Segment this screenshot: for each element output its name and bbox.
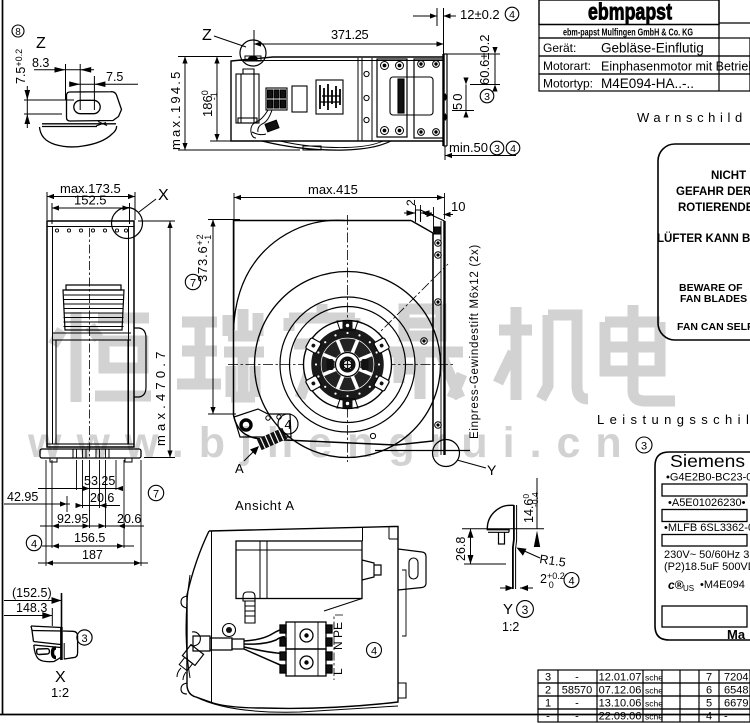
svg-text:Gerät:: Gerät: (543, 41, 576, 55)
svg-text:(152.5): (152.5) (12, 586, 52, 600)
svg-text:53.25: 53.25 (84, 474, 115, 488)
svg-text:max.194.5: max.194.5 (168, 69, 183, 150)
svg-text:Z: Z (202, 27, 212, 44)
svg-text:•M4E094: •M4E094 (700, 579, 745, 591)
svg-text:Ma: Ma (727, 627, 746, 642)
svg-text:12±0.2: 12±0.2 (460, 7, 500, 22)
svg-text:6: 6 (706, 685, 712, 697)
svg-text:N PE: N PE (331, 622, 345, 650)
svg-text:max.470.7: max.470.7 (153, 347, 168, 446)
svg-text:•A5E01026230•: •A5E01026230• (668, 497, 746, 509)
svg-text:LÜFTER KANN B: LÜFTER KANN B (657, 232, 750, 245)
svg-text:152.5: 152.5 (74, 193, 107, 208)
svg-text:sche: sche (645, 686, 663, 696)
svg-text:GEFAHR DER: GEFAHR DER (676, 186, 750, 198)
svg-text:8.3: 8.3 (32, 56, 49, 70)
svg-text:min.50: min.50 (449, 140, 488, 155)
svg-text:-: - (575, 672, 579, 684)
svg-text:X: X (158, 187, 169, 204)
svg-text:-: - (575, 711, 579, 723)
svg-text:ebmpapst: ebmpapst (588, 0, 672, 25)
svg-text:42.95: 42.95 (7, 490, 38, 504)
svg-text:www.bjhengrui.cn: www.bjhengrui.cn (27, 419, 637, 467)
svg-text:-: - (724, 711, 728, 723)
svg-text:Einpress-Gewindestift M6x12 (2: Einpress-Gewindestift M6x12 (2x) (469, 244, 481, 439)
svg-text:•G4E2B0-BC23-05: •G4E2B0-BC23-05 (666, 472, 750, 484)
svg-text:1: 1 (545, 698, 551, 710)
svg-text:•MLFB 6SL3362-0: •MLFB 6SL3362-0 (664, 522, 750, 534)
svg-text:3: 3 (484, 91, 490, 103)
svg-text:2: 2 (545, 685, 551, 697)
svg-text:371.25: 371.25 (331, 27, 369, 42)
svg-text:58570: 58570 (562, 685, 593, 697)
svg-text:sche: sche (645, 673, 663, 683)
svg-text:07.12.06: 07.12.06 (599, 685, 642, 697)
svg-text:4: 4 (285, 418, 292, 432)
svg-text:3: 3 (81, 633, 87, 645)
svg-text:US: US (683, 584, 694, 593)
svg-text:L: L (331, 668, 345, 675)
svg-text:10: 10 (451, 199, 465, 214)
svg-text:ROTIERENDE: ROTIERENDE (678, 202, 750, 214)
svg-text:Einphasenmotor mit Betriebs: Einphasenmotor mit Betriebs (601, 60, 750, 74)
svg-text:sche: sche (645, 699, 663, 709)
svg-text:3: 3 (494, 143, 500, 155)
svg-text:3: 3 (545, 672, 551, 684)
svg-text:7: 7 (153, 489, 159, 501)
svg-text:26.8: 26.8 (454, 537, 468, 561)
svg-text:Motorart:: Motorart: (543, 59, 591, 73)
svg-text:22.09.06: 22.09.06 (599, 711, 642, 723)
svg-text:187: 187 (82, 548, 103, 562)
svg-text:FAN BLADES: FAN BLADES (680, 293, 747, 305)
svg-text:1:2: 1:2 (502, 620, 519, 634)
svg-text:4: 4 (568, 576, 574, 588)
svg-text:12.01.07: 12.01.07 (599, 672, 642, 684)
svg-text:230V~ 50/60Hz 3: 230V~ 50/60Hz 3 (664, 549, 749, 561)
svg-text:7: 7 (190, 278, 196, 290)
svg-text:6548: 6548 (724, 685, 748, 697)
svg-text:M4E094-HA..-..: M4E094-HA..-.. (601, 76, 694, 91)
svg-text:ebm-papst Mulfingen GmbH & Co.: ebm-papst Mulfingen GmbH & Co. KG (563, 28, 693, 39)
svg-text:156.5: 156.5 (74, 531, 105, 545)
svg-text:X: X (55, 669, 66, 686)
svg-text:4: 4 (509, 9, 515, 21)
svg-text:20.6: 20.6 (117, 512, 141, 526)
svg-text:4: 4 (371, 646, 377, 658)
svg-text:Gebläse-Einflutig: Gebläse-Einflutig (601, 41, 704, 56)
svg-text:8: 8 (15, 27, 21, 38)
svg-text:-: - (575, 698, 579, 710)
svg-text:NICHT: NICHT (711, 170, 746, 182)
svg-text:3: 3 (522, 603, 529, 617)
svg-text:7204: 7204 (724, 672, 748, 684)
svg-text:2: 2 (404, 199, 418, 206)
svg-text:Y: Y (487, 462, 497, 478)
svg-text:4: 4 (706, 711, 712, 723)
svg-text:sche: sche (645, 712, 663, 722)
svg-text:6679: 6679 (724, 698, 748, 710)
svg-text:Ansicht A: Ansicht A (235, 498, 295, 513)
svg-text:50: 50 (450, 92, 465, 110)
svg-text:60.6±0.2: 60.6±0.2 (477, 34, 492, 85)
svg-text:Motortyp:: Motortyp: (543, 77, 593, 91)
svg-text:Siemens: Siemens (670, 451, 745, 471)
svg-text:FAN CAN SELF: FAN CAN SELF (677, 321, 750, 333)
svg-text:7: 7 (706, 672, 712, 684)
svg-text:-: - (546, 711, 550, 723)
svg-text:max.415: max.415 (308, 182, 358, 197)
svg-text:3: 3 (641, 441, 647, 453)
svg-text:Warnschild w: Warnschild w (637, 110, 750, 125)
svg-text:Leistungsschil: Leistungsschil (597, 412, 750, 427)
svg-text:Y: Y (503, 601, 513, 618)
svg-text:7.5: 7.5 (106, 70, 123, 84)
svg-text:13.10.06: 13.10.06 (599, 698, 642, 710)
svg-text:A: A (235, 461, 244, 476)
svg-text:4: 4 (31, 539, 37, 551)
svg-text:1:2: 1:2 (51, 685, 69, 700)
svg-text:(P2)18.5uF 500VD: (P2)18.5uF 500VD (664, 561, 750, 573)
svg-text:c®: c® (668, 578, 684, 592)
svg-text:4: 4 (510, 143, 516, 155)
svg-text:20.6: 20.6 (90, 491, 114, 505)
svg-text:5: 5 (706, 698, 712, 710)
svg-text:Z: Z (36, 35, 46, 52)
